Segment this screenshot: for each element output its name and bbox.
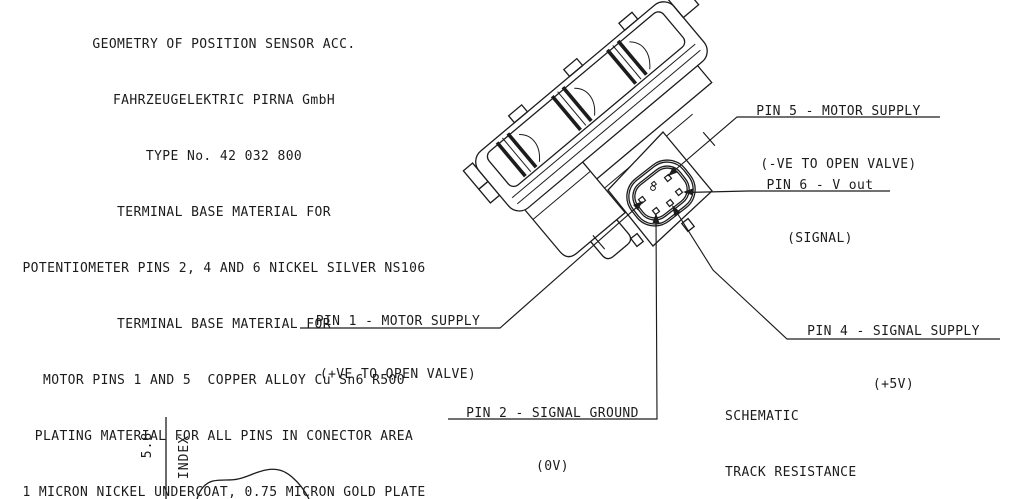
- schematic-line: TRACK RESISTANCE: [725, 460, 1015, 486]
- spec-line: GEOMETRY OF POSITION SENSOR ACC.: [0, 32, 448, 58]
- pin6-label-line2: (SIGNAL): [746, 227, 894, 250]
- dimension-value: 5.8: [139, 422, 157, 468]
- pin6-label: PIN 6 - V out (SIGNAL): [746, 144, 894, 280]
- spec-line: POTENTIOMETER PINS 2, 4 AND 6 NICKEL SIL…: [0, 256, 448, 282]
- pin4-label-line1: PIN 4 - SIGNAL SUPPLY: [787, 320, 1000, 343]
- spec-line: PLATING MATERIAL FOR ALL PINS IN CONECTO…: [0, 424, 448, 450]
- schematic-notes-block: SCHEMATIC TRACK RESISTANCE Rt = 2K2 440R…: [725, 374, 1015, 499]
- pin2-label-line2: (0V): [448, 455, 657, 478]
- pin5-label-line1: PIN 5 - MOTOR SUPPLY: [737, 100, 940, 123]
- index-label: INDEX: [176, 419, 194, 495]
- pin1-label-line1: PIN 1 - MOTOR SUPPLY: [298, 310, 498, 333]
- spec-line: 1 MICRON NICKEL UNDERCOAT, 0.75 MICRON G…: [0, 480, 448, 499]
- pin2-label: PIN 2 - SIGNAL GROUND (0V): [448, 372, 657, 499]
- pin6-label-line1: PIN 6 - V out: [746, 174, 894, 197]
- specification-block: GEOMETRY OF POSITION SENSOR ACC. FAHRZEU…: [0, 2, 448, 499]
- pin2-label-line1: PIN 2 - SIGNAL GROUND: [448, 402, 657, 425]
- spec-line: TYPE No. 42 032 800: [0, 144, 448, 170]
- connector: [608, 132, 712, 246]
- technical-drawing-sheet: GEOMETRY OF POSITION SENSOR ACC. FAHRZEU…: [0, 0, 1018, 499]
- schematic-line: SCHEMATIC: [725, 404, 1015, 430]
- spec-line: TERMINAL BASE MATERIAL FOR: [0, 200, 448, 226]
- spec-line: FAHRZEUGELEKTRIC PIRNA GmbH: [0, 88, 448, 114]
